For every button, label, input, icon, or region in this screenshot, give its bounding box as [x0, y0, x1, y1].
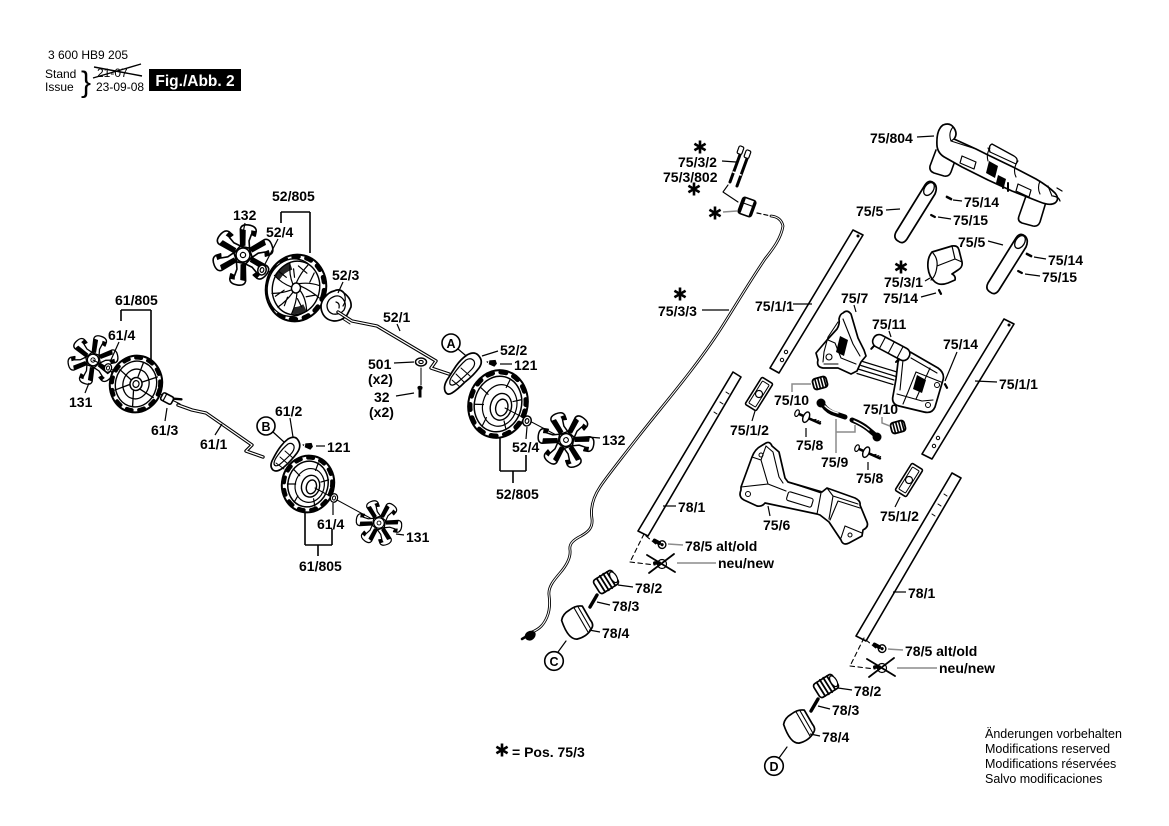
svg-text:75/1/1: 75/1/1 [755, 298, 794, 314]
svg-text:52/805: 52/805 [272, 188, 315, 204]
svg-text:131: 131 [69, 394, 93, 410]
svg-text:75/9: 75/9 [821, 454, 848, 470]
svg-text:131: 131 [406, 529, 430, 545]
svg-text:75/7: 75/7 [841, 290, 868, 306]
svg-text:(x2): (x2) [369, 404, 394, 420]
svg-text:}: } [81, 66, 91, 99]
svg-text:Änderungen vorbehalten: Änderungen vorbehalten [985, 727, 1122, 741]
svg-text:75/3/1: 75/3/1 [884, 274, 923, 290]
svg-text:75/3/802: 75/3/802 [663, 169, 718, 185]
svg-text:Salvo modificaciones: Salvo modificaciones [985, 772, 1102, 786]
svg-text:75/3/2: 75/3/2 [678, 154, 717, 170]
svg-text:neu/new: neu/new [939, 660, 995, 676]
svg-text:52/2: 52/2 [500, 342, 527, 358]
svg-text:75/1/1: 75/1/1 [999, 376, 1038, 392]
svg-text:A: A [446, 337, 455, 351]
svg-text:132: 132 [233, 207, 257, 223]
svg-text:75/1/2: 75/1/2 [880, 508, 919, 524]
svg-text:75/15: 75/15 [1042, 269, 1077, 285]
svg-text:78/5 alt/old: 78/5 alt/old [905, 643, 977, 659]
svg-text:121: 121 [514, 357, 538, 373]
svg-text:78/2: 78/2 [854, 683, 881, 699]
svg-text:78/5 alt/old: 78/5 alt/old [685, 538, 757, 554]
svg-text:78/3: 78/3 [612, 598, 639, 614]
svg-text:61/1: 61/1 [200, 436, 227, 452]
svg-text:32: 32 [374, 389, 390, 405]
svg-text:75/11: 75/11 [872, 316, 906, 332]
svg-text:78/1: 78/1 [908, 585, 935, 601]
svg-text:52/3: 52/3 [332, 267, 359, 283]
svg-text:75/14: 75/14 [943, 336, 978, 352]
svg-text:78/3: 78/3 [832, 702, 859, 718]
svg-text:75/6: 75/6 [763, 517, 790, 533]
svg-text:61/805: 61/805 [299, 558, 342, 574]
svg-text:Stand: Stand [45, 67, 76, 81]
svg-text:75/14: 75/14 [883, 290, 918, 306]
svg-text:75/8: 75/8 [856, 470, 883, 486]
svg-text:52/1: 52/1 [383, 309, 410, 325]
svg-text:neu/new: neu/new [718, 555, 774, 571]
svg-text:78/2: 78/2 [635, 580, 662, 596]
svg-text:132: 132 [602, 432, 626, 448]
svg-text:75/3/3: 75/3/3 [658, 303, 697, 319]
svg-text:75/5: 75/5 [856, 203, 883, 219]
svg-text:78/4: 78/4 [822, 729, 849, 745]
svg-text:121: 121 [327, 439, 351, 455]
svg-text:52/4: 52/4 [266, 224, 293, 240]
svg-text:75/14: 75/14 [1048, 252, 1083, 268]
svg-text:61/3: 61/3 [151, 422, 178, 438]
svg-text:= Pos. 75/3: = Pos. 75/3 [512, 744, 585, 760]
svg-text:75/8: 75/8 [796, 437, 823, 453]
svg-text:(x2): (x2) [368, 371, 393, 387]
svg-text:3 600 HB9 205: 3 600 HB9 205 [48, 48, 128, 62]
svg-text:23-09-08: 23-09-08 [96, 80, 144, 94]
svg-text:61/2: 61/2 [275, 403, 302, 419]
svg-text:C: C [549, 655, 558, 669]
svg-text:75/804: 75/804 [870, 130, 913, 146]
svg-text:61/4: 61/4 [317, 516, 344, 532]
svg-text:78/1: 78/1 [678, 499, 705, 515]
svg-text:75/15: 75/15 [953, 212, 988, 228]
svg-text:75/5: 75/5 [958, 234, 985, 250]
svg-text:52/4: 52/4 [512, 439, 539, 455]
svg-text:501: 501 [368, 356, 392, 372]
svg-text:Modifications reserved: Modifications reserved [985, 742, 1110, 756]
svg-text:61/805: 61/805 [115, 292, 158, 308]
svg-text:52/805: 52/805 [496, 486, 539, 502]
svg-text:B: B [261, 420, 270, 434]
svg-text:78/4: 78/4 [602, 625, 629, 641]
svg-text:75/14: 75/14 [964, 194, 999, 210]
svg-text:75/10: 75/10 [774, 392, 809, 408]
svg-text:75/10: 75/10 [863, 401, 898, 417]
svg-text:61/4: 61/4 [108, 327, 135, 343]
svg-text:D: D [769, 760, 778, 774]
svg-text:Issue: Issue [45, 80, 74, 94]
svg-text:Modifications réservées: Modifications réservées [985, 757, 1116, 771]
svg-text:75/1/2: 75/1/2 [730, 422, 769, 438]
svg-text:Fig./Abb. 2: Fig./Abb. 2 [155, 73, 234, 90]
